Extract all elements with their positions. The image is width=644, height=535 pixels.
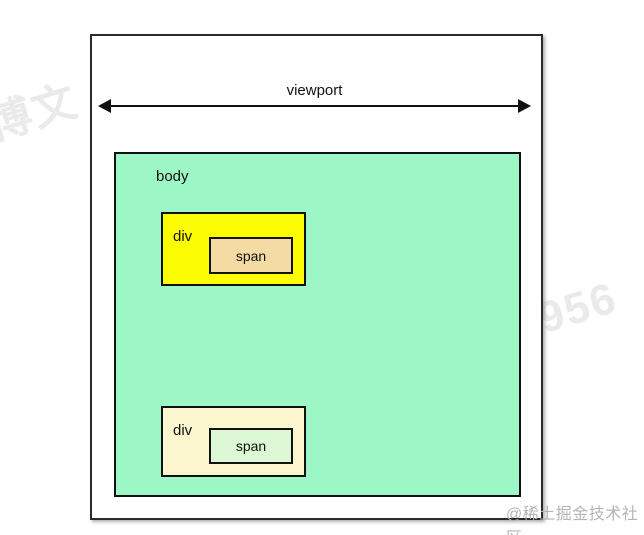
viewport-box: viewport body div span div span bbox=[90, 34, 543, 520]
viewport-label: viewport bbox=[98, 82, 531, 100]
span2-label: span bbox=[236, 438, 266, 454]
viewport-width-measure: viewport bbox=[98, 82, 531, 118]
double-headed-arrow bbox=[98, 99, 531, 113]
span-box-1: span bbox=[209, 237, 293, 274]
div-box-2: div span bbox=[161, 406, 306, 477]
body-label: body bbox=[156, 168, 189, 185]
arrow-line bbox=[108, 105, 521, 107]
arrow-right-icon bbox=[518, 99, 531, 113]
div-box-1: div span bbox=[161, 212, 306, 286]
body-box: body div span div span bbox=[114, 152, 521, 497]
div1-label: div bbox=[173, 228, 192, 245]
diagram-canvas: 李博文 1956 李博文 1956 viewport body div span bbox=[0, 0, 644, 535]
span-box-2: span bbox=[209, 428, 293, 464]
div2-label: div bbox=[173, 422, 192, 439]
span1-label: span bbox=[236, 248, 266, 264]
